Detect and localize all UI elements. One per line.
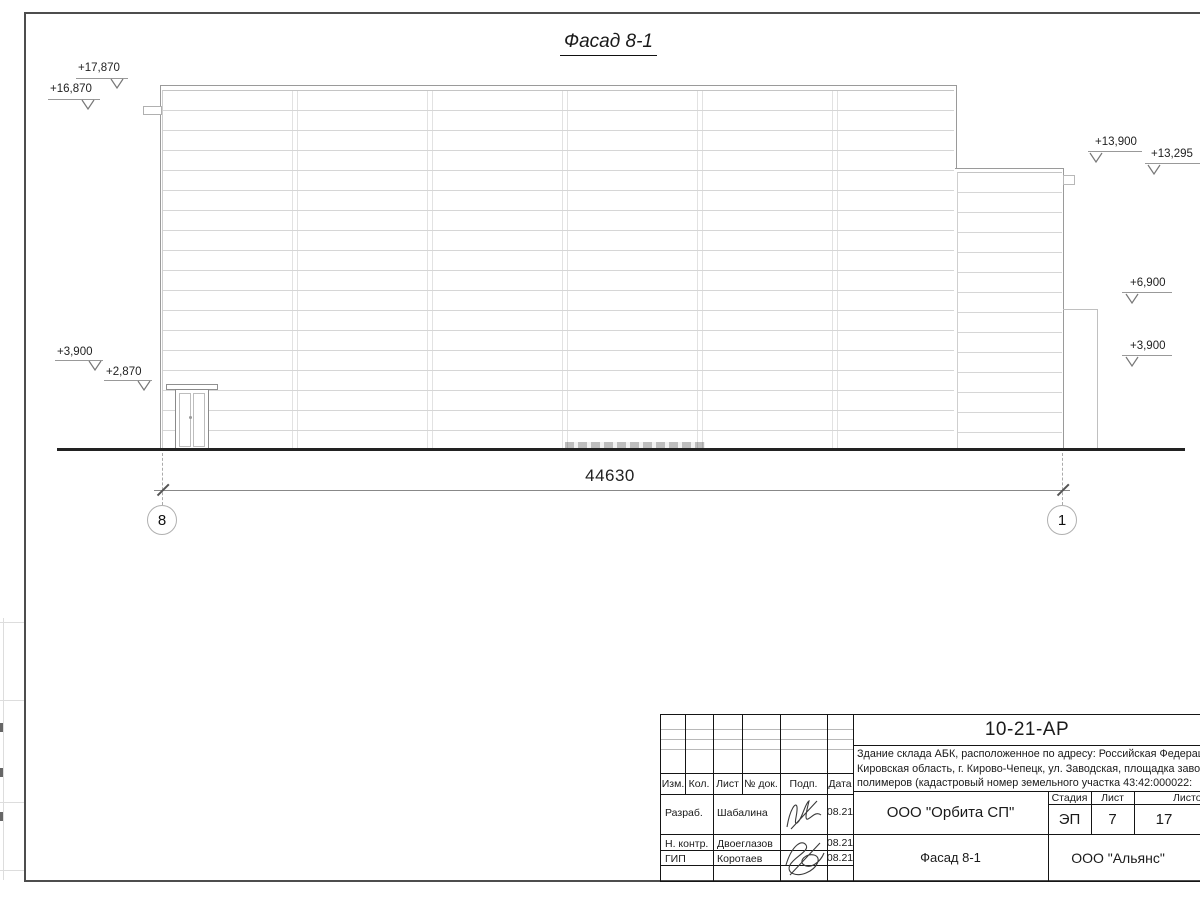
role-developer-label: Разраб.	[665, 807, 703, 819]
elevation-label: +2,870	[106, 366, 142, 378]
project-description-line: Здание склада АБК, расположенное по адре…	[857, 747, 1200, 762]
stamp-line	[661, 749, 853, 750]
door-leaf	[179, 393, 191, 447]
elevation-label: +3,900	[1130, 340, 1166, 352]
elevation-label: +16,870	[50, 83, 92, 95]
role-gip-date: 08.21	[827, 851, 853, 865]
col-header-data: Дата	[827, 774, 853, 794]
axis-number: 1	[1058, 512, 1066, 529]
role-developer-name: Шабалина	[717, 807, 768, 819]
sheet-value: 7	[1091, 804, 1134, 834]
elevation-mark-icon	[1125, 356, 1139, 367]
facade-main-panels	[162, 90, 954, 449]
doc-number: 10-21-АР	[853, 715, 1200, 745]
role-checker-date: 08.21	[827, 836, 853, 850]
col-header-izm: Изм.	[661, 774, 685, 794]
parapet-tab-left	[143, 106, 162, 115]
axis-number: 8	[158, 512, 166, 529]
margin-line	[0, 802, 24, 803]
margin-text-stub	[0, 768, 3, 777]
margin-line	[3, 618, 4, 880]
facade-right-panels	[957, 172, 1062, 449]
parapet-tab-right	[1063, 175, 1075, 185]
sheet-title: Фасад 8-1	[853, 834, 1048, 881]
elevation-label: +3,900	[57, 346, 93, 358]
margin-text-stub	[0, 723, 3, 732]
col-header-doc: № док.	[742, 774, 780, 794]
col-header-kol: Кол.	[685, 774, 713, 794]
stamp-line	[661, 729, 853, 730]
title-block: Изм. Кол. Лист № док. Подп. Дата Разраб.…	[660, 714, 1200, 882]
annex-block	[1063, 309, 1098, 449]
role-gip-label: ГИП	[665, 853, 686, 865]
project-description-line: полимеров (кадастровый номер земельного …	[857, 776, 1200, 791]
elevation-label: +6,900	[1130, 277, 1166, 289]
elevation-mark-icon	[137, 380, 151, 391]
elevation-mark-icon	[1125, 293, 1139, 304]
axis-bubble-1: 1	[1047, 505, 1077, 535]
role-developer-date: 08.21	[827, 805, 853, 819]
role-gip-name: Коротаев	[717, 853, 762, 865]
elevation-mark-icon	[1089, 152, 1103, 163]
elevation-mark-icon	[1147, 164, 1161, 175]
elevation-mark-icon	[110, 78, 124, 89]
role-checker-name: Двоеглазов	[717, 838, 773, 850]
sheet-label: Лист	[1091, 791, 1134, 804]
axis-extension-line	[162, 453, 163, 505]
elevation-label: +17,870	[78, 62, 120, 74]
door-leaf	[193, 393, 205, 447]
elevation-label: +13,900	[1095, 136, 1137, 148]
ground-line	[57, 448, 1185, 451]
organization-name: ООО "Орбита СП"	[853, 791, 1048, 834]
elevation-mark-icon	[81, 99, 95, 110]
drawing-sheet: { "sheet": { "view_title": "Фасад 8-1", …	[0, 0, 1200, 900]
entrance-door	[175, 389, 209, 450]
sheets-value: 17	[1134, 804, 1194, 834]
view-title: Фасад 8-1	[560, 31, 657, 56]
elevation-mark-icon	[88, 360, 102, 371]
contractor-name: ООО "Альянс"	[1048, 834, 1188, 881]
role-checker-label: Н. контр.	[665, 838, 708, 850]
margin-text-stub	[0, 812, 3, 821]
elevation-label: +13,295	[1151, 148, 1193, 160]
door-handle	[189, 416, 192, 419]
project-description: Здание склада АБК, расположенное по адре…	[857, 747, 1200, 791]
margin-line	[0, 700, 24, 701]
margin-line	[0, 870, 24, 871]
sheets-label: Листов	[1173, 792, 1200, 804]
stamp-line	[713, 715, 714, 881]
dimension-line	[154, 490, 1070, 491]
stage-value: ЭП	[1048, 804, 1091, 834]
project-description-line: Кировская область, г. Кирово-Чепецк, ул.…	[857, 762, 1200, 777]
margin-line	[0, 622, 24, 623]
col-header-podp: Подп.	[780, 774, 827, 794]
stage-label: Стадия	[1048, 791, 1091, 804]
axis-extension-line	[1062, 453, 1063, 505]
col-header-list: Лист	[713, 774, 742, 794]
signature-squiggle	[780, 835, 828, 879]
signature-squiggle	[783, 795, 825, 835]
stamp-line	[661, 739, 853, 740]
axis-bubble-8: 8	[147, 505, 177, 535]
dimension-value: 44630	[560, 466, 660, 486]
